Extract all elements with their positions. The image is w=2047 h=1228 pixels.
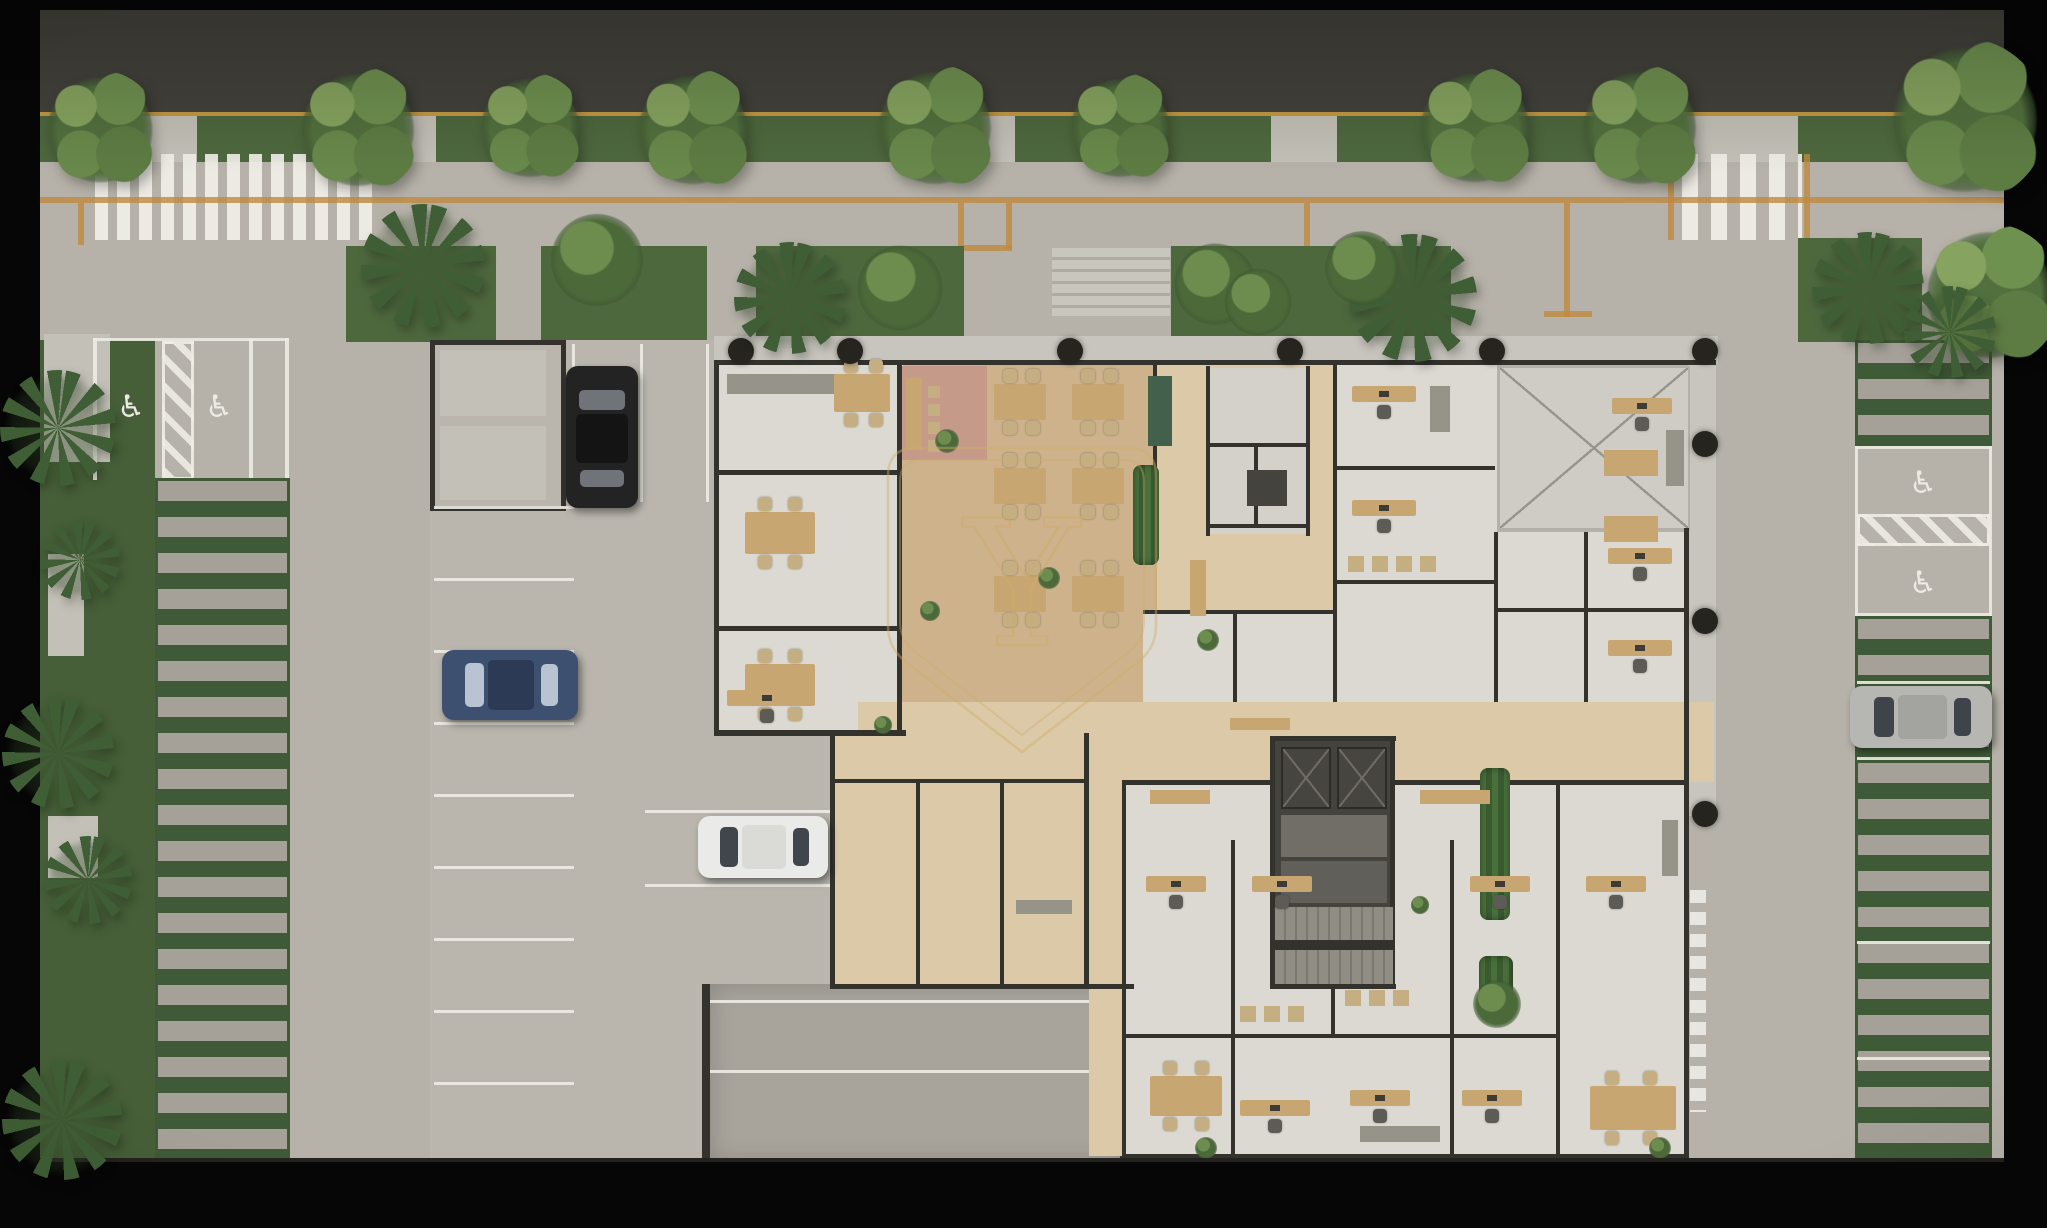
chair	[1420, 556, 1436, 572]
column	[1277, 338, 1303, 364]
stair-stringer	[1275, 940, 1393, 950]
kitchenette	[1360, 1126, 1440, 1142]
table	[1072, 384, 1124, 420]
tactile-branch	[1804, 154, 1810, 240]
office-chair	[760, 709, 774, 723]
desk	[1470, 876, 1530, 892]
chair	[1003, 613, 1017, 627]
plant	[919, 600, 941, 622]
wall	[1498, 608, 1686, 612]
elevator	[1337, 747, 1387, 809]
wall	[897, 362, 902, 735]
table	[1072, 468, 1124, 504]
office-chair	[1377, 519, 1391, 533]
monitor	[1375, 1095, 1385, 1101]
shelving	[1662, 820, 1678, 876]
wheelchair-marking: ♿	[1908, 566, 1938, 600]
plant	[934, 428, 960, 454]
shrub	[1322, 228, 1402, 308]
street-tree	[40, 70, 160, 190]
site-edge	[40, 1158, 2004, 1162]
shrub	[1222, 266, 1294, 338]
chair	[1372, 556, 1388, 572]
wall	[834, 779, 1086, 783]
meeting-table	[1150, 1076, 1222, 1116]
chair	[1264, 1006, 1280, 1022]
stall-line	[1857, 681, 1990, 684]
plant	[1648, 1136, 1672, 1160]
desk	[1612, 398, 1672, 414]
desk	[1150, 790, 1210, 804]
stall-line	[434, 1010, 574, 1013]
chair	[1195, 1117, 1209, 1131]
chair	[1026, 613, 1040, 627]
shelving	[727, 374, 839, 394]
chair	[1081, 561, 1095, 575]
chair	[788, 707, 802, 721]
stall-line	[640, 344, 643, 502]
chair	[788, 649, 802, 663]
office-chair	[1373, 1109, 1387, 1123]
monitor	[1635, 553, 1645, 559]
monitor	[1635, 645, 1645, 651]
palm	[0, 370, 116, 486]
scene-layer: ♿♿♿♿	[0, 0, 2047, 1228]
bench	[1190, 560, 1206, 616]
monitor	[1171, 881, 1181, 887]
column	[1692, 431, 1718, 457]
chair	[1104, 421, 1118, 435]
wall	[1556, 782, 1560, 1156]
meeting-table	[834, 374, 890, 412]
wall	[1270, 984, 1396, 989]
chair	[1605, 1071, 1619, 1085]
wall	[1306, 366, 1310, 536]
elevator	[1281, 747, 1331, 809]
chair	[1081, 505, 1095, 519]
desk	[1240, 1100, 1310, 1116]
palm	[361, 204, 485, 328]
chair	[1003, 369, 1017, 383]
wall	[719, 626, 899, 631]
car-roof	[576, 414, 628, 462]
desk	[1146, 876, 1206, 892]
chair	[1104, 561, 1118, 575]
column	[1692, 608, 1718, 634]
stall-line	[285, 338, 289, 480]
monitor	[1270, 1105, 1280, 1111]
info-desk	[1247, 470, 1287, 506]
restrooms-floor	[1210, 368, 1310, 534]
desk	[1608, 640, 1672, 656]
desk	[1352, 500, 1416, 516]
car-gr	[793, 828, 809, 865]
desk	[1352, 386, 1416, 402]
wall	[719, 470, 899, 475]
office-chair	[1485, 1109, 1499, 1123]
chair	[788, 497, 802, 511]
garage-ramp	[710, 984, 1120, 1162]
street-tree	[1883, 38, 2047, 202]
offices-ne-floor	[1337, 364, 1497, 702]
table	[994, 384, 1046, 420]
car-gf	[465, 663, 484, 708]
skylight-void	[1498, 366, 1690, 530]
chair	[758, 497, 772, 511]
cafe-counter	[906, 378, 922, 450]
chair	[1003, 421, 1017, 435]
no-parking-hatch	[162, 341, 194, 480]
wall	[1233, 612, 1237, 702]
monitor	[1495, 881, 1505, 887]
stall-line	[1857, 757, 1990, 760]
car-roof	[1898, 695, 1946, 740]
plant	[1194, 1136, 1218, 1160]
wall	[1122, 782, 1126, 1156]
wall	[1000, 782, 1004, 984]
chair	[1104, 613, 1118, 627]
street-tree	[1413, 66, 1537, 190]
chair	[1163, 1117, 1177, 1131]
chair	[844, 413, 858, 427]
chair	[869, 359, 883, 373]
column	[1479, 338, 1505, 364]
table	[1072, 576, 1124, 612]
palm	[40, 520, 120, 600]
bike-parking	[1690, 890, 1706, 1112]
wall	[1206, 366, 1210, 536]
utility-pad	[440, 350, 546, 416]
car-gf	[579, 390, 625, 410]
chair	[1026, 369, 1040, 383]
chair	[1003, 561, 1017, 575]
tactile-branch	[78, 203, 84, 245]
wall	[714, 360, 1716, 365]
wall	[1450, 840, 1454, 1156]
street-tree	[1064, 72, 1176, 184]
wall	[1584, 532, 1588, 702]
stall-line	[1857, 1057, 1990, 1060]
chair	[1288, 1006, 1304, 1022]
office-chair	[1633, 659, 1647, 673]
stall-line	[434, 722, 574, 725]
chair	[1369, 990, 1385, 1006]
tactile-branch	[1564, 203, 1570, 317]
cabinet	[1604, 516, 1658, 542]
chair	[869, 413, 883, 427]
stall-line	[434, 578, 574, 581]
car-blue-sedan	[442, 650, 578, 720]
wheelchair-marking: ♿	[1908, 466, 1938, 500]
monitor	[1611, 881, 1621, 887]
chair	[1605, 1131, 1619, 1145]
chair	[758, 555, 772, 569]
chair	[1345, 990, 1361, 1006]
chair	[1026, 421, 1040, 435]
wall	[1124, 1034, 1558, 1038]
stall-line	[645, 884, 831, 887]
stool	[928, 404, 940, 416]
chair	[1643, 1071, 1657, 1085]
office-chair	[1377, 405, 1391, 419]
desk	[1462, 1090, 1522, 1106]
street-tree	[294, 66, 422, 194]
chair	[1081, 421, 1095, 435]
plant	[1037, 566, 1061, 590]
monitor	[1379, 391, 1389, 397]
tactile-branch	[1544, 311, 1592, 317]
car-gr	[1954, 698, 1971, 735]
car-gr	[541, 664, 557, 706]
wall	[1231, 840, 1235, 1156]
stall-line	[434, 938, 574, 941]
palm	[2, 697, 114, 809]
office-chair	[1493, 895, 1507, 909]
palm	[44, 836, 132, 924]
planter-hedge	[1133, 465, 1159, 565]
bench	[1230, 718, 1290, 730]
table	[994, 468, 1046, 504]
chair	[1396, 556, 1412, 572]
slab	[1281, 815, 1387, 857]
chair	[1393, 990, 1409, 1006]
chair	[1104, 453, 1118, 467]
chair	[1240, 1006, 1256, 1022]
entrance-steps	[1052, 248, 1170, 316]
monitor	[1487, 1095, 1497, 1101]
permeable-parking-west	[155, 478, 290, 1162]
wall	[916, 782, 920, 984]
chair	[1081, 453, 1095, 467]
storage-bays-floor	[834, 733, 1086, 986]
stall-line	[434, 1082, 574, 1085]
ramp-line	[710, 1000, 1120, 1003]
car-silver-sedan	[1850, 686, 1992, 748]
wall	[1337, 580, 1495, 584]
utility-pad	[440, 426, 546, 500]
desk	[727, 690, 807, 706]
desk	[1586, 876, 1646, 892]
monitor	[1637, 403, 1647, 409]
copier	[1430, 386, 1450, 432]
desk	[1420, 790, 1490, 804]
street-tree	[1576, 64, 1704, 192]
wall	[1337, 466, 1495, 470]
column	[1057, 338, 1083, 364]
plant	[873, 715, 893, 735]
site-plan-render: ♿♿♿♿ Y	[0, 0, 2047, 1228]
stall-line	[249, 338, 253, 480]
column	[1692, 338, 1718, 364]
office-chair	[1635, 417, 1649, 431]
car-black-suv	[566, 366, 638, 508]
no-parking-hatch	[1857, 514, 1990, 546]
desk	[1608, 548, 1672, 564]
office-chair	[1268, 1119, 1282, 1133]
chair	[1026, 505, 1040, 519]
car-white-hatch	[698, 816, 828, 878]
monitor	[1379, 505, 1389, 511]
monitor	[1277, 881, 1287, 887]
car-gr	[580, 470, 623, 487]
street-tree	[631, 68, 755, 192]
ramp-line	[710, 1070, 1120, 1073]
stall-line	[1857, 941, 1990, 944]
stall-line	[706, 344, 709, 502]
palm	[2, 1060, 122, 1180]
wall	[1494, 532, 1498, 702]
office-chair	[1633, 567, 1647, 581]
rack	[1016, 900, 1072, 914]
curb-apron	[1271, 116, 1337, 162]
column	[1692, 801, 1718, 827]
column	[728, 338, 754, 364]
ramp-wall	[702, 984, 710, 1162]
car-gf	[720, 827, 738, 867]
chair	[758, 649, 772, 663]
tactile-branch	[1006, 203, 1012, 249]
wall	[1122, 780, 1688, 785]
desk	[1252, 876, 1312, 892]
meeting-table	[745, 512, 815, 554]
wheelchair-marking: ♿	[116, 390, 146, 424]
desk	[1350, 1090, 1410, 1106]
wall	[1143, 610, 1333, 614]
plant	[1471, 978, 1523, 1030]
chair	[1195, 1061, 1209, 1075]
wall	[430, 340, 566, 345]
street-tree	[871, 64, 999, 192]
shrub	[854, 242, 946, 334]
car-roof	[742, 825, 786, 870]
credenza	[1666, 430, 1684, 486]
chair	[1026, 453, 1040, 467]
tactile-guide-strip	[40, 197, 2004, 203]
office-chair	[1275, 895, 1289, 909]
shrub	[547, 210, 647, 310]
car-roof	[488, 660, 534, 710]
stall-line	[645, 810, 831, 813]
stall-line	[434, 866, 574, 869]
chair	[1104, 369, 1118, 383]
street-tree	[474, 72, 586, 184]
chair	[1003, 505, 1017, 519]
wall	[430, 340, 435, 510]
chair	[1163, 1061, 1177, 1075]
monitor	[762, 695, 772, 701]
tactile-branch	[958, 203, 964, 249]
meeting-table	[1590, 1086, 1676, 1130]
stall-line	[434, 506, 574, 509]
office-chair	[1609, 895, 1623, 909]
chair	[1081, 369, 1095, 383]
reception-counter	[1148, 376, 1172, 446]
chair	[1104, 505, 1118, 519]
stool	[928, 386, 940, 398]
palm	[1904, 286, 1996, 378]
plant	[1410, 895, 1430, 915]
corridor-floor	[1089, 782, 1122, 1156]
chair	[1348, 556, 1364, 572]
wall	[1684, 528, 1689, 1161]
wall	[1333, 364, 1337, 702]
car-gf	[1874, 697, 1894, 737]
palm	[734, 242, 846, 354]
cabinet	[1604, 450, 1658, 476]
wheelchair-marking: ♿	[204, 390, 234, 424]
chair	[1081, 613, 1095, 627]
office-chair	[1169, 895, 1183, 909]
rooms-mid-floor	[1143, 612, 1335, 702]
wall	[1084, 733, 1089, 988]
wall	[830, 733, 835, 988]
stall-line	[434, 794, 574, 797]
plant	[1196, 628, 1220, 652]
chair	[1003, 453, 1017, 467]
wall	[714, 362, 719, 735]
chair	[788, 555, 802, 569]
column	[837, 338, 863, 364]
tactile-branch	[958, 245, 1012, 251]
stall-line	[1855, 446, 1992, 449]
